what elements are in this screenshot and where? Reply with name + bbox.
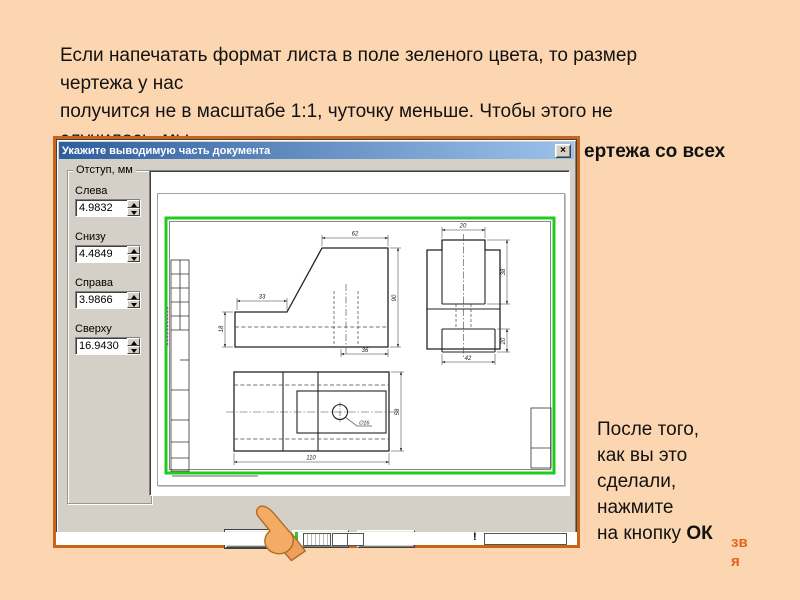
note-last-prefix: на кнопку: [597, 523, 686, 544]
dim-front-height: 90: [392, 294, 398, 301]
print-extent-dialog: Укажите выводимую часть документа × Отст…: [56, 139, 577, 534]
dim-front-left: 18: [219, 325, 225, 332]
note-line-1: После того,: [597, 417, 713, 443]
dim-side-top: 20: [459, 224, 467, 230]
dim-front-width: 62: [352, 232, 359, 238]
margin-bottom-input[interactable]: 4.4849: [75, 245, 141, 263]
dim-side-tab: 38: [501, 268, 507, 275]
margin-left-value: 4.9832: [76, 200, 127, 216]
green-print-frame: [166, 218, 554, 473]
note-line-5: на кнопку ОК: [597, 521, 713, 547]
close-icon[interactable]: ×: [555, 144, 571, 158]
dim-plan-width: 110: [306, 456, 316, 462]
margin-bottom-value: 4.4849: [76, 246, 127, 262]
dim-hole: ∅16: [359, 421, 371, 427]
margin-top-value: 16.9430: [76, 338, 127, 354]
dim-side-bottom: 42: [465, 356, 472, 362]
watermark-initials: зв я: [731, 533, 748, 571]
note-ok-emphasis: ОК: [686, 523, 712, 544]
field-label-right: Справа: [75, 277, 113, 289]
margin-left-spinner: [127, 200, 140, 216]
dim-side-notch: 20: [501, 337, 507, 345]
dialog-body: Отступ, мм Слева 4.9832 Снизу 4.4849 Спр…: [59, 160, 574, 531]
spin-up-icon[interactable]: [127, 292, 140, 300]
margin-top-input[interactable]: 16.9430: [75, 337, 141, 355]
margin-right-value: 3.9866: [76, 292, 127, 308]
slide-note-text: После того, как вы это сделали, нажмите …: [597, 417, 713, 547]
dim-front-step: 33: [259, 295, 266, 301]
side-view: 20 38 20 42: [427, 224, 510, 366]
document-preview[interactable]: 62 33 36 18 90: [149, 170, 570, 496]
spin-up-icon[interactable]: [127, 338, 140, 346]
strip-table: [332, 533, 364, 546]
spin-down-icon[interactable]: [127, 300, 140, 308]
pointing-hand-cursor: [250, 505, 308, 566]
strip-rectangle: [484, 533, 567, 545]
dialog-titlebar[interactable]: Укажите выводимую часть документа ×: [59, 142, 574, 159]
dim-plan-height: 58: [395, 408, 401, 415]
margin-left-input[interactable]: 4.9832: [75, 199, 141, 217]
margin-right-input[interactable]: 3.9866: [75, 291, 141, 309]
dialog-title: Укажите выводимую часть документа: [62, 145, 555, 157]
margin-top-spinner: [127, 338, 140, 354]
front-view: 62 33 36 18 90: [219, 232, 401, 358]
intro-line-2: чертежа у нас: [60, 70, 740, 98]
technical-drawing: 62 33 36 18 90: [158, 194, 564, 485]
watermark-line-1: зв: [731, 533, 748, 552]
margin-bottom-spinner: [127, 246, 140, 262]
margin-right-spinner: [127, 292, 140, 308]
strip-exclamation: !: [473, 531, 477, 543]
spin-down-icon[interactable]: [127, 208, 140, 216]
field-label-top: Сверху: [75, 323, 112, 335]
watermark-line-2: я: [731, 552, 748, 571]
field-label-bottom: Снизу: [75, 231, 106, 243]
note-line-4: нажмите: [597, 495, 713, 521]
intro-line-1: Если напечатать формат листа в поле зеле…: [60, 42, 740, 70]
field-label-left: Слева: [75, 185, 107, 197]
intro-line-3: получится не в масштабе 1:1, чуточку мен…: [60, 98, 740, 126]
dim-front-bottom: 36: [362, 348, 369, 354]
spin-down-icon[interactable]: [127, 346, 140, 354]
screenshot-frame: Укажите выводимую часть документа × Отст…: [53, 136, 580, 548]
spin-down-icon[interactable]: [127, 254, 140, 262]
hand-icon: [250, 505, 308, 561]
margins-groupbox: Отступ, мм Слева 4.9832 Снизу 4.4849 Спр…: [67, 170, 152, 504]
note-line-3: сделали,: [597, 469, 713, 495]
spin-up-icon[interactable]: [127, 200, 140, 208]
margins-group-title: Отступ, мм: [73, 164, 136, 176]
overlapped-text-fragment: ертежа со всех: [584, 141, 725, 163]
background-app-strip: !: [56, 532, 577, 545]
drawing-sheet: 62 33 36 18 90: [157, 193, 565, 486]
spin-up-icon[interactable]: [127, 246, 140, 254]
note-line-2: как вы это: [597, 443, 713, 469]
title-block: [171, 260, 551, 476]
plan-view: ∅16 110 58: [226, 372, 404, 465]
